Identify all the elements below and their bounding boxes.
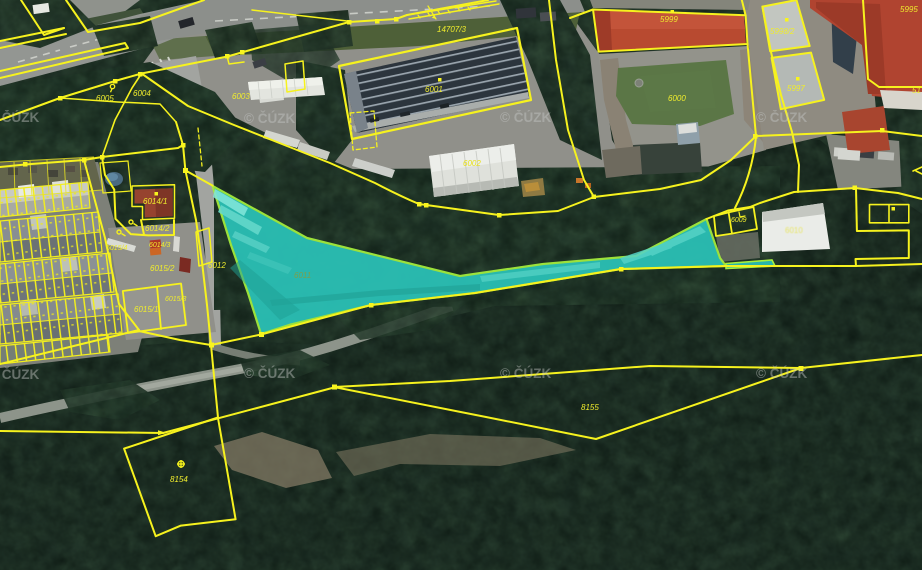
svg-text:© ČÚZK: © ČÚZK xyxy=(0,110,39,125)
svg-text:6001: 6001 xyxy=(425,85,443,94)
svg-text:51: 51 xyxy=(912,86,921,95)
svg-text:6000: 6000 xyxy=(668,94,686,103)
svg-text:5998/2: 5998/2 xyxy=(770,27,795,36)
svg-text:© ČÚZK: © ČÚZK xyxy=(500,366,551,381)
svg-text:6003: 6003 xyxy=(232,92,250,101)
svg-text:5995: 5995 xyxy=(900,5,918,14)
svg-text:6015/1: 6015/1 xyxy=(134,305,158,314)
svg-text:8155: 8155 xyxy=(581,403,599,412)
svg-text:6005: 6005 xyxy=(96,94,114,103)
svg-text:6015/3: 6015/3 xyxy=(165,296,187,303)
svg-text:6014/2: 6014/2 xyxy=(145,224,170,233)
svg-text:6011: 6011 xyxy=(294,271,311,280)
svg-text:6015/2: 6015/2 xyxy=(150,264,175,273)
svg-text:6014/1: 6014/1 xyxy=(143,197,167,206)
svg-text:6009: 6009 xyxy=(731,217,747,224)
svg-text:6002: 6002 xyxy=(463,159,481,168)
svg-text:© ČÚZK: © ČÚZK xyxy=(756,110,807,125)
svg-text:5997: 5997 xyxy=(787,84,805,93)
svg-text:6010: 6010 xyxy=(785,226,803,235)
svg-text:14707/3: 14707/3 xyxy=(437,25,466,34)
svg-text:© ČÚZK: © ČÚZK xyxy=(500,110,551,125)
svg-text:© ČÚZK: © ČÚZK xyxy=(244,111,295,126)
svg-text:5999: 5999 xyxy=(660,15,678,24)
svg-text:© ČÚZK: © ČÚZK xyxy=(244,366,295,381)
svg-text:6014/3: 6014/3 xyxy=(149,242,171,249)
svg-text:6012: 6012 xyxy=(208,261,226,270)
svg-text:© ČÚZK: © ČÚZK xyxy=(756,366,807,381)
svg-text:6004: 6004 xyxy=(133,89,151,98)
svg-text:6015/4: 6015/4 xyxy=(106,245,128,252)
svg-text:8154: 8154 xyxy=(170,475,188,484)
svg-text:© ČÚZK: © ČÚZK xyxy=(0,367,39,382)
